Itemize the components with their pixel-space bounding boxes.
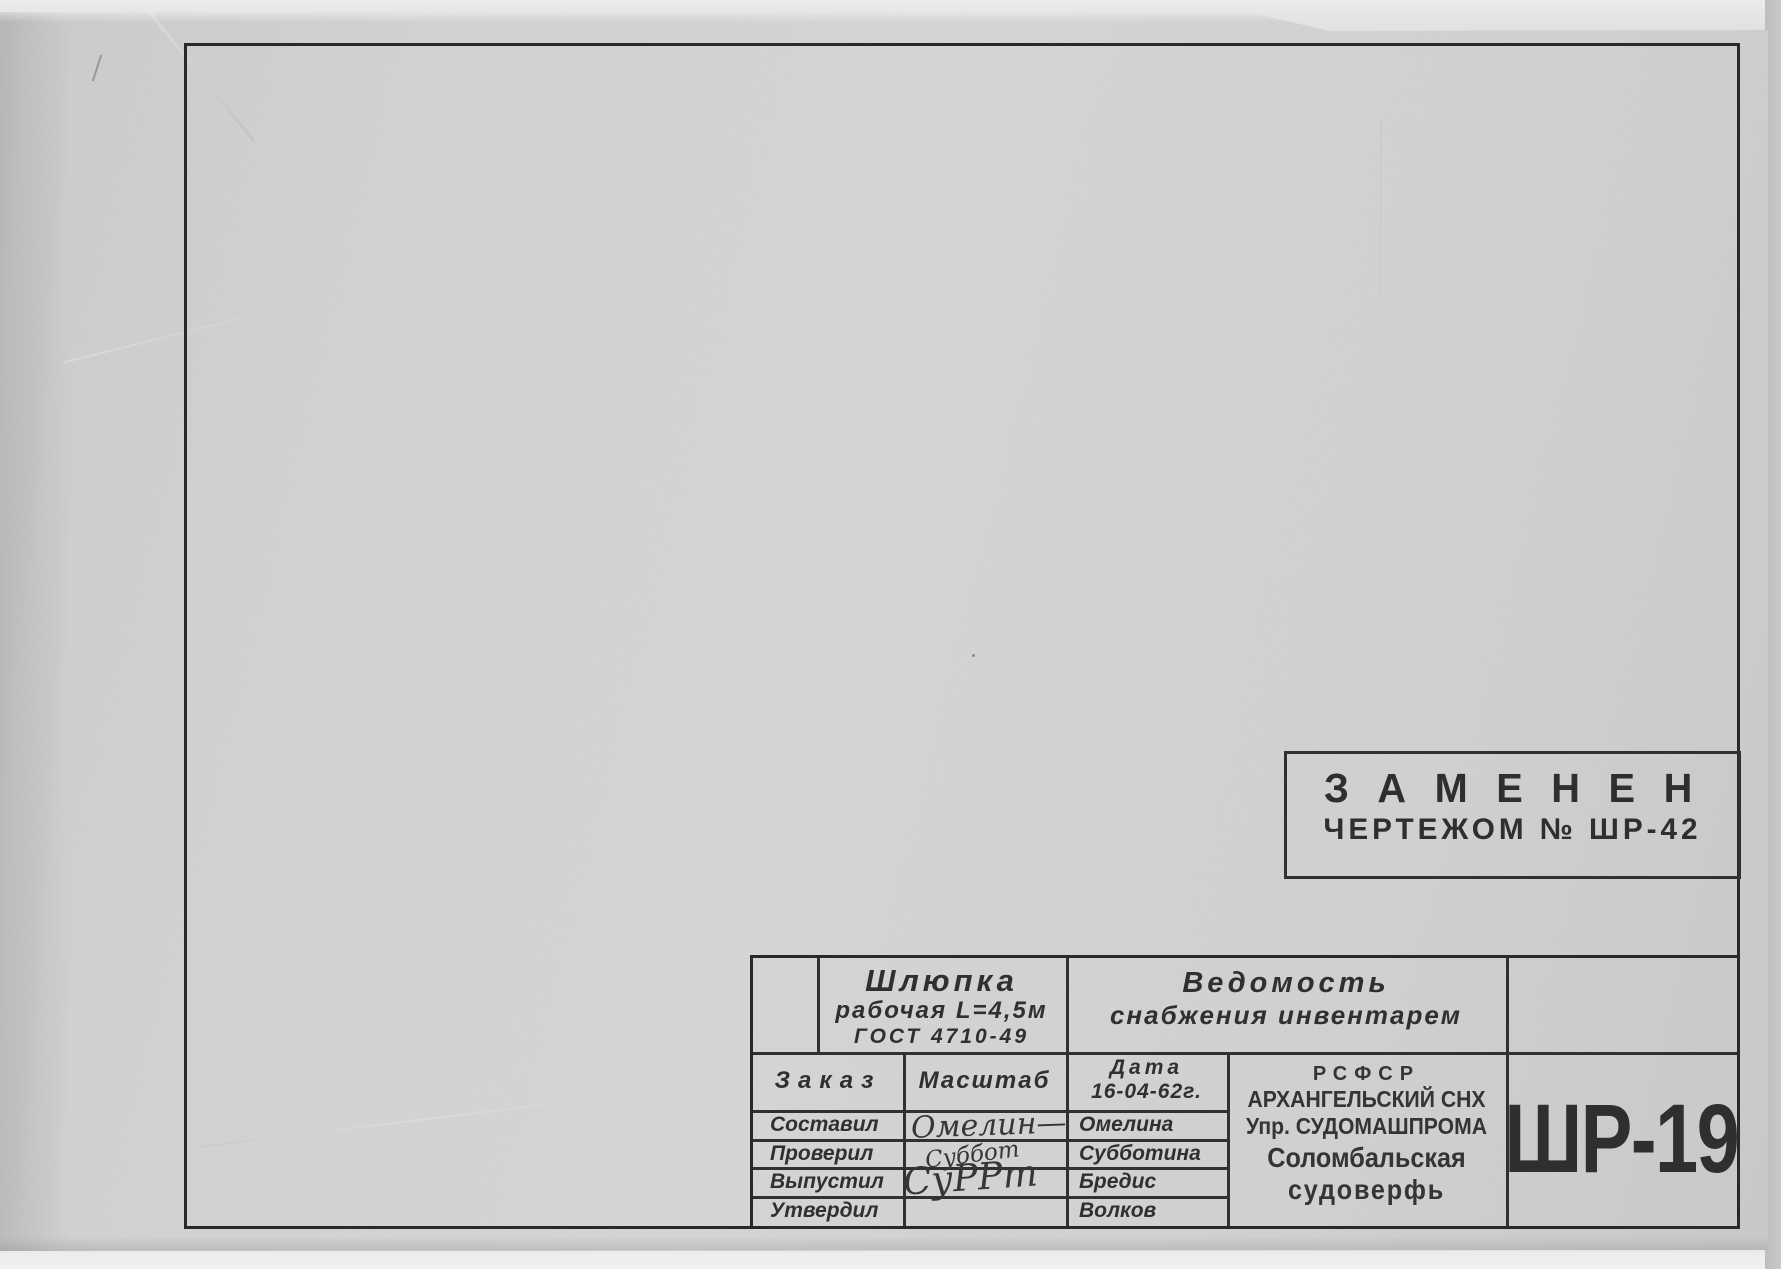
drawing-number-cell: ШР-19 [1506, 1052, 1737, 1226]
org-shipyard-line2: судоверфь [1241, 1174, 1492, 1206]
item-spec: рабочая L=4,5м [817, 997, 1066, 1025]
organization-cell: РСФСР АРХАНГЕЛЬСКИЙ СНХ Упр. СУДОМАШПРОМ… [1227, 1052, 1506, 1226]
document-title-cell: Ведомость снабжения инвентарем [1066, 958, 1506, 1052]
superseded-stamp-box: З А М Е Н Е Н ЧЕРТЕЖОМ № ШР-42 [1284, 751, 1741, 879]
org-directorate: Упр. СУДОМАШПРОМА [1238, 1113, 1495, 1140]
date-label: Дата [1066, 1056, 1227, 1080]
approval-role-issued: Выпустил [753, 1167, 903, 1196]
approval-name-compiled: Омелина [1066, 1110, 1227, 1139]
stamp-line-drawing-ref: ЧЕРТЕЖОМ № ШР-42 [1289, 813, 1735, 847]
paper-bottom-edge-shadow [0, 1236, 1781, 1251]
stamp-line-replaced: З А М Е Н Е Н [1294, 765, 1731, 812]
document-title-line1: Ведомость [1066, 967, 1506, 1000]
item-name: Шлюпка [817, 963, 1066, 999]
pen-mark-left-margin [92, 54, 103, 81]
date-value: 16-04-62г. [1066, 1080, 1227, 1104]
paper-top-edge-highlight [0, 12, 1781, 22]
org-shipyard-line1: Соломбальская [1241, 1142, 1492, 1174]
paper-left-shadow [0, 0, 70, 1269]
approval-name-checked: Субботина [1066, 1139, 1227, 1168]
approval-role-compiled: Составил [753, 1110, 903, 1139]
approval-name-approved: Волков [1066, 1196, 1227, 1225]
scale-label: Масштаб [903, 1067, 1066, 1095]
date-cell: Дата 16-04-62г. [1066, 1052, 1227, 1110]
scale-header-cell: Масштаб [903, 1052, 1066, 1110]
item-gost: ГОСТ 4710-49 [817, 1025, 1066, 1049]
org-republic: РСФСР [1227, 1063, 1506, 1086]
paper-sheet: З А М Е Н Е Н ЧЕРТЕЖОМ № ШР-42 Шлюпка ра… [0, 0, 1781, 1269]
order-header-cell: Заказ [753, 1052, 903, 1110]
scanned-drawing-sheet: З А М Е Н Е Н ЧЕРТЕЖОМ № ШР-42 Шлюпка ра… [0, 0, 1781, 1269]
title-block: Шлюпка рабочая L=4,5м ГОСТ 4710-49 Ведом… [750, 955, 1740, 1229]
item-description-cell: Шлюпка рабочая L=4,5м ГОСТ 4710-49 [817, 958, 1066, 1052]
approval-role-approved: Утвердил [753, 1196, 903, 1225]
approval-name-issued: Бредис [1066, 1167, 1227, 1196]
approval-role-checked: Проверил [753, 1139, 903, 1168]
org-council: АРХАНГЕЛЬСКИЙ СНХ [1238, 1086, 1495, 1113]
document-title-line2: снабжения инвентарем [1066, 1000, 1506, 1031]
order-label: Заказ [753, 1067, 903, 1095]
drawing-number: ШР-19 [1505, 1083, 1739, 1195]
